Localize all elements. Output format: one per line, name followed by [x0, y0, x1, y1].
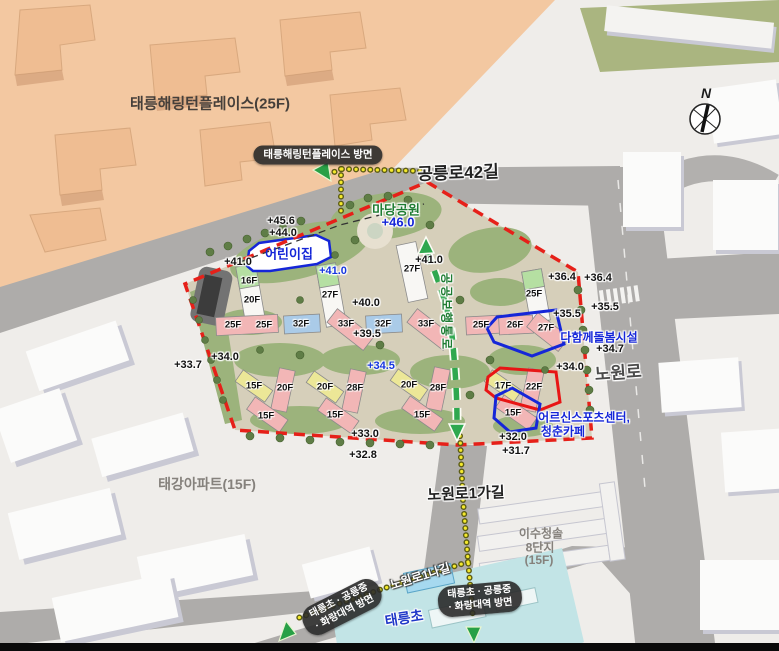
badge-right-direction: 태릉초 · 공릉중 · 화랑대역 방면 — [437, 580, 523, 618]
label-nowonro1ga: 노원로1가길 — [427, 481, 505, 505]
building-floor-label: 32F — [375, 319, 391, 330]
building-floor-label: 20F — [277, 383, 293, 394]
elevation-marker: +32.8 — [349, 449, 377, 461]
building-floor-label: 33F — [338, 319, 354, 330]
label-isu-line3: (15F) — [525, 553, 554, 567]
site-plan-screenshot: 태릉해링턴플레이스(25F) 공릉로42길 노원로 노원로1가길 노원로1나길 … — [0, 0, 779, 651]
label-nowonro: 노원로 — [594, 357, 643, 385]
building-floor-label: 28F — [347, 383, 363, 394]
building-floor-label: 25F — [225, 320, 241, 331]
label-senior-center-line2: 청춘카페 — [541, 423, 585, 440]
badge-left-direction: 태릉초 · 공릉중 · 화랑대역 방면 — [297, 574, 386, 640]
building-floor-label: 25F — [526, 289, 542, 300]
elevation-marker: +41.0 — [319, 265, 347, 277]
label-gongneungro42: 공릉로42길 — [417, 157, 499, 185]
building-floor-label: 27F — [404, 264, 420, 275]
elevation-marker: +44.0 — [269, 227, 297, 239]
elevation-marker: +34.0 — [556, 361, 584, 373]
building-floor-label: 25F — [256, 320, 272, 331]
building-floor-label: 33F — [418, 319, 434, 330]
building-floor-label: 28F — [430, 383, 446, 394]
elevation-marker: +35.5 — [591, 301, 619, 313]
building-floor-label: 20F — [317, 382, 333, 393]
label-taereung-elementary: 태릉초 — [383, 605, 424, 631]
building-floor-label: 15F — [258, 411, 274, 422]
building-floor-label: 32F — [293, 319, 309, 330]
elevation-marker: +34.5 — [367, 360, 395, 372]
label-daycare: 어린이집 — [265, 244, 313, 263]
label-harrington: 태릉해링턴플레이스(25F) — [130, 93, 290, 114]
building-floor-label: 16F — [241, 276, 257, 287]
building-floor-label: 27F — [538, 323, 554, 334]
elevation-marker: +31.7 — [502, 445, 530, 457]
elevation-marker: +45.6 — [267, 215, 295, 227]
elevation-marker: +33.0 — [351, 428, 379, 440]
building-floor-label: 27F — [322, 290, 338, 301]
elevation-marker: +34.7 — [596, 343, 624, 355]
building-floor-label: 20F — [244, 295, 260, 306]
building-floor-label: 15F — [327, 410, 343, 421]
label-taegang-apt: 태강아파트(15F) — [158, 474, 256, 494]
elevation-marker: +35.5 — [553, 308, 581, 320]
badge-harrington-direction: 태릉해링턴플레이스 방면 — [253, 145, 382, 164]
building-floor-label: 25F — [473, 320, 489, 331]
building-floor-label: 17F — [495, 381, 511, 392]
elevation-marker: +36.4 — [584, 272, 612, 284]
elevation-marker: +34.0 — [211, 351, 239, 363]
building-floor-label: 20F — [401, 380, 417, 391]
building-floor-label: 15F — [414, 410, 430, 421]
label-public-walkway: 공공보행통로 — [439, 273, 456, 351]
building-floor-label: 22F — [526, 382, 542, 393]
label-madang-park-elevation: +46.0 — [382, 215, 415, 230]
elevation-marker: +32.0 — [499, 431, 527, 443]
building-floor-label: 15F — [246, 381, 262, 392]
elevation-marker: +36.4 — [548, 271, 576, 283]
elevation-marker: +40.0 — [352, 297, 380, 309]
compass-n-label: N — [701, 85, 711, 101]
elevation-marker: +41.0 — [224, 256, 252, 268]
building-floor-label: 15F — [505, 408, 521, 419]
building-floor-label: 26F — [507, 320, 523, 331]
elevation-marker: +39.5 — [353, 328, 381, 340]
elevation-marker: +33.7 — [174, 359, 202, 371]
label-overlay: 태릉해링턴플레이스(25F) 공릉로42길 노원로 노원로1가길 노원로1나길 … — [0, 0, 779, 651]
